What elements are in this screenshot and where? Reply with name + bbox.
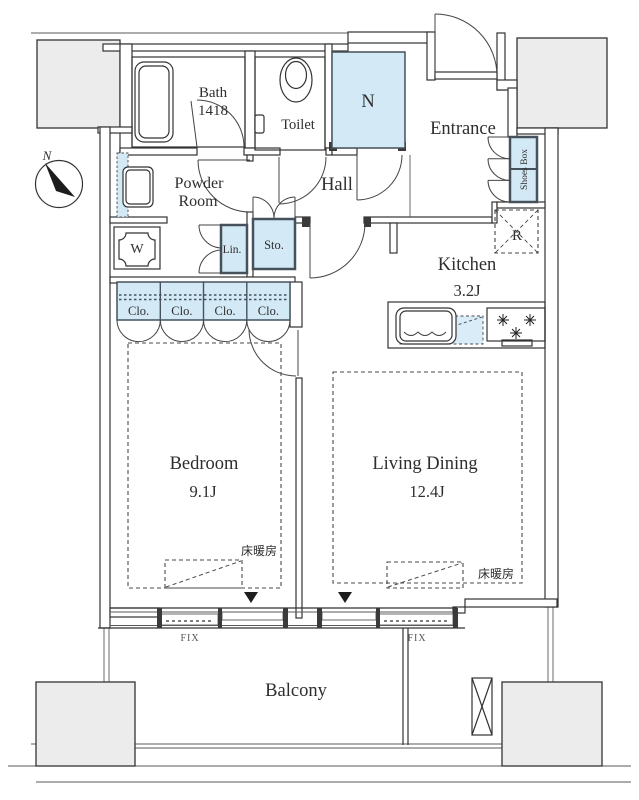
kitchen-label: Kitchen [438,255,497,275]
balcony-label: Balcony [265,681,327,701]
fix-label-left: FIX [180,633,199,644]
wall [244,148,280,155]
wall [110,217,167,223]
wall-kitchen-stub [390,223,397,253]
wall-east [545,128,558,607]
window-post [283,608,288,628]
bedroom-floor-heating-label: 床暖房 [241,543,277,558]
powder-room-label-1: Powder [175,175,225,192]
wall [103,44,348,51]
shoes-box-label: Shoes Box [520,149,530,190]
sliding-window-ld [322,612,376,620]
pier-bottom-right [502,682,602,766]
wall-partition [296,378,302,618]
wall [325,44,332,148]
pier-top-right [517,38,607,128]
entrance-door-arc [435,14,497,76]
kitchen-size-label: 3.2J [453,281,481,300]
compass-north-label: N [42,148,53,163]
storage-closet: Sto. [253,197,295,269]
bath-label: Bath [199,85,228,101]
sliding-window-bedroom [222,612,283,620]
toilet-panel [255,115,264,133]
ld-floor-heating-label: 床暖房 [478,566,514,581]
washing-machine-pan: W [114,227,160,269]
washbasin-inner [126,170,150,204]
refrigerator-label: R [512,228,522,244]
closet-label-1: Clo. [128,304,149,318]
kitchen-counter [388,302,545,348]
wall [465,599,557,607]
washing-machine-label: W [130,242,144,257]
floor-plan-drawing: N [0,0,639,800]
refrigerator-space: R [495,210,538,253]
wall [290,282,302,327]
powder-room-label-2: Room [178,193,218,210]
wall [508,88,517,137]
n-door-arc [357,155,402,200]
wall [348,32,430,43]
duct-shaft [472,678,492,735]
bedroom-floor-heating-unit [165,560,242,588]
ld-rug-outline [333,372,522,583]
window-post [317,608,322,628]
kitchen-area: R Kitchen 3.2J [388,210,545,348]
wall [364,217,492,223]
wall [120,148,197,155]
wall [120,44,132,153]
bathtub-inner [139,66,169,138]
pier-top-left [37,40,120,128]
toilet-label: Toilet [281,117,315,133]
fix-label-right: FIX [407,633,426,644]
wall-west [100,127,110,628]
opening-direction-icon [244,592,258,603]
bedroom: Bedroom 9.1J 床暖房 [128,329,298,588]
window-post [218,608,222,628]
window-post [376,608,380,628]
closet-label-2: Clo. [171,304,192,318]
hall-label: Hall [321,175,353,195]
stove-burner-icon [497,314,536,339]
closet-label-3: Clo. [215,304,236,318]
bath-room: Bath 1418 [132,57,245,147]
fix-window-left [160,614,218,625]
linen-label: Lin. [223,244,242,256]
closet-bifold-doors [117,320,290,342]
toilet-bowl-inner [286,62,307,89]
window-post [453,608,458,628]
bath-size-label: 1418 [198,103,228,119]
opening-direction-icon [338,592,352,603]
sink-inner [400,311,452,341]
living-dining-label: Living Dining [372,454,477,474]
door-post [302,217,310,227]
wall [245,51,255,148]
storage-label: Sto. [264,238,284,252]
wall [110,608,160,617]
bedroom-label: Bedroom [170,454,239,474]
toilet-door-arc [279,157,326,204]
powder-room: Powder Room W Lin. [114,153,250,273]
fix-window-right [378,614,453,625]
wall [427,32,435,80]
n-storage-label: N [361,92,374,112]
linen-cabinet: Lin. [199,225,247,273]
living-dining: Living Dining 12.4J 床暖房 [333,372,522,588]
pier-bottom-left [36,682,135,766]
bedroom-size-label: 9.1J [189,482,217,501]
ld-door-arc [310,223,365,278]
ld-floor-heating-unit [387,562,463,588]
compass: N [36,148,83,208]
balcony-area: Balcony [265,678,492,735]
closet-label-4: Clo. [258,304,279,318]
floor-plan-page: N [0,0,639,800]
south-windows: FIX FIX [98,592,465,644]
shoes-box-door-arcs [488,137,510,202]
living-dining-size-label: 12.4J [409,482,445,501]
entrance-label: Entrance [430,119,496,139]
window-post [157,608,162,628]
bath-door-leaf [191,101,197,147]
bedroom-door-arc [249,329,296,376]
compass-needle-icon [45,163,75,197]
closet-row: Clo. Clo. Clo. Clo. [117,282,290,342]
toilet-room: Toilet [255,57,326,204]
entrance-door-sill [435,72,497,79]
